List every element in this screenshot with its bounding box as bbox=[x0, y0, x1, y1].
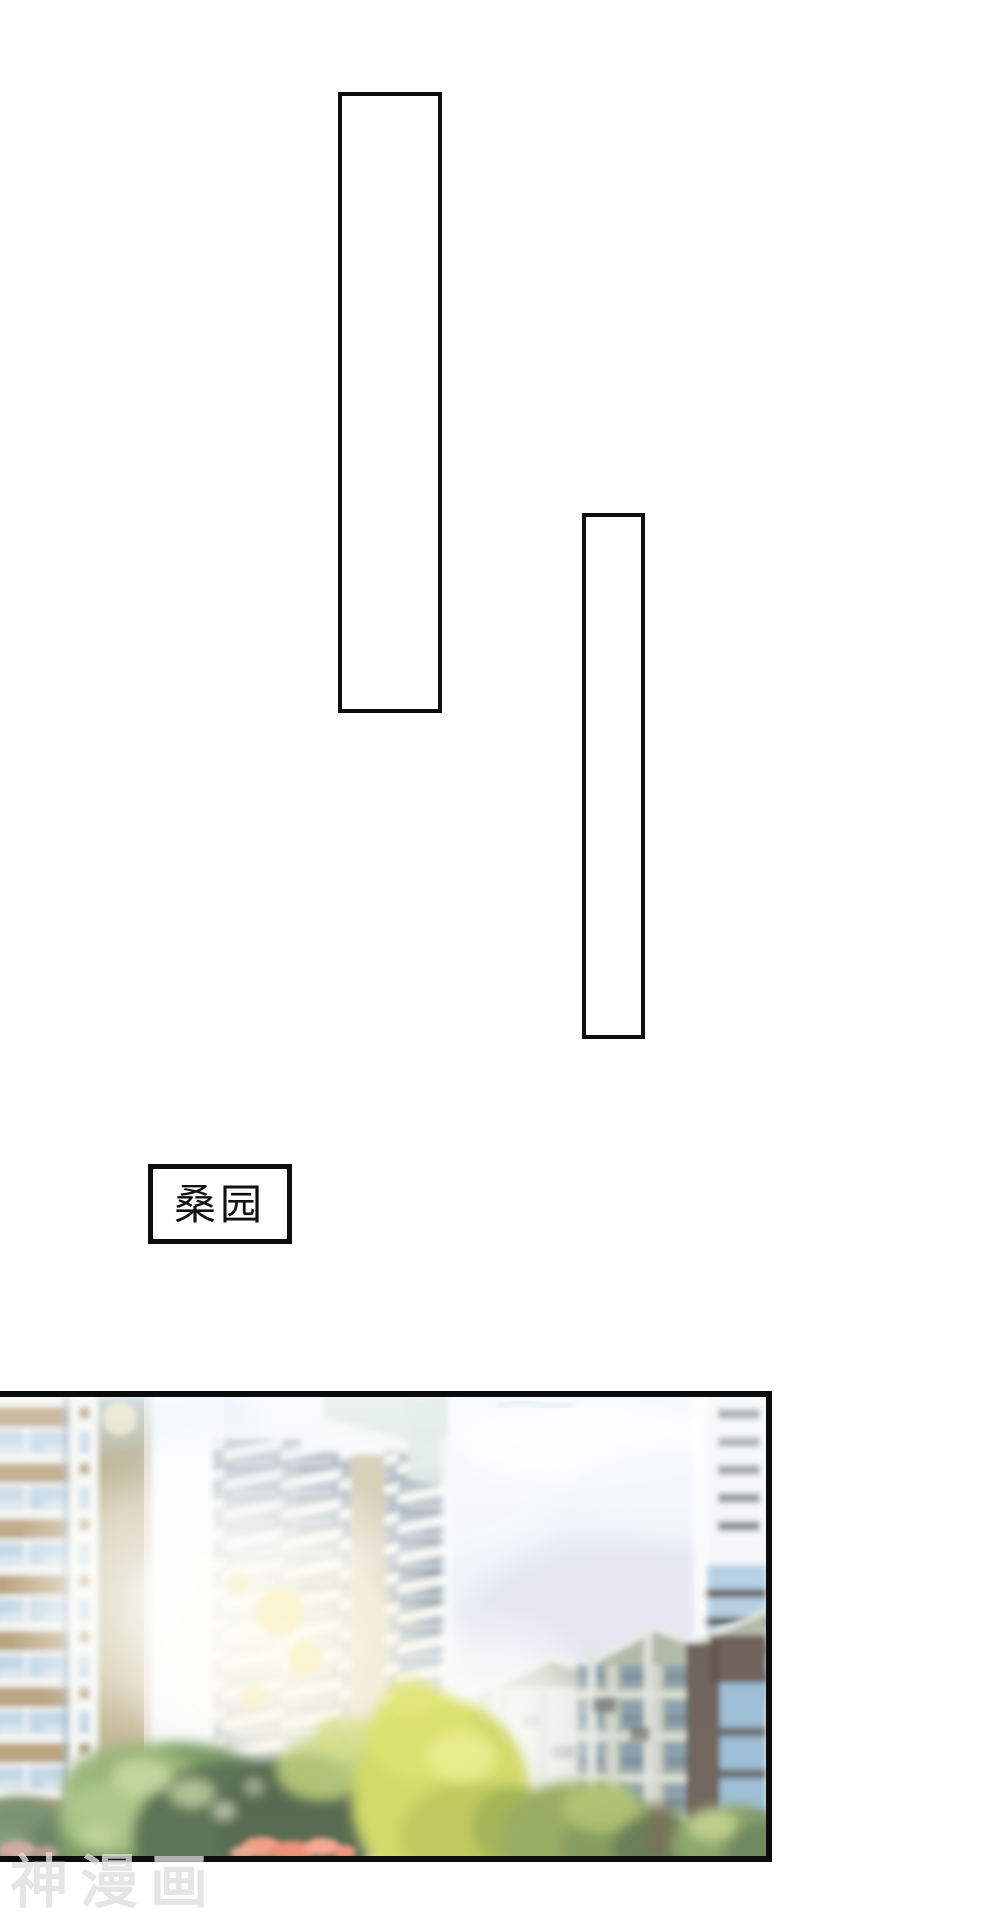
location-label-text: 桑园 bbox=[174, 1184, 266, 1226]
speech-bubble-1 bbox=[338, 92, 442, 713]
location-label-box: 桑园 bbox=[148, 1164, 292, 1244]
comic-page: 桑园 bbox=[0, 0, 1000, 1926]
speech-bubble-2 bbox=[582, 513, 645, 1039]
city-illustration bbox=[0, 1397, 766, 1856]
illustration-panel bbox=[0, 1391, 772, 1862]
watermark-text: 神漫画 bbox=[10, 1854, 220, 1912]
